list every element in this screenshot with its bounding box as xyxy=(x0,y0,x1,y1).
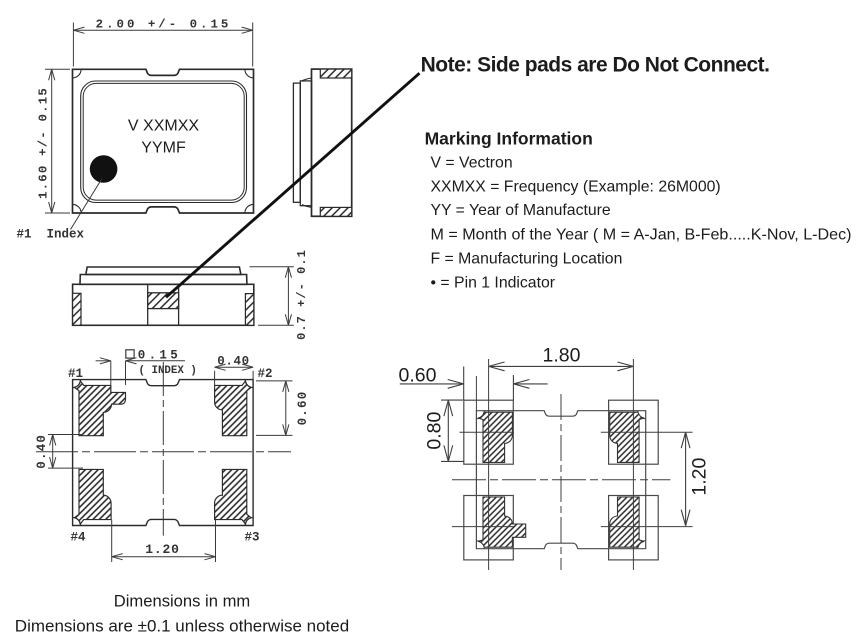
svg-text:#3: #3 xyxy=(245,531,260,545)
svg-text:#2: #2 xyxy=(258,367,273,381)
svg-text:1.20: 1.20 xyxy=(688,457,710,495)
svg-text:0.40: 0.40 xyxy=(217,355,249,369)
svg-text:0.80: 0.80 xyxy=(423,411,445,449)
svg-text:#1: #1 xyxy=(68,367,83,381)
svg-text:( INDEX ): ( INDEX ) xyxy=(139,365,197,377)
svg-text:V XXMXX: V XXMXX xyxy=(128,118,199,135)
svg-text:V = Vectron: V = Vectron xyxy=(431,155,513,172)
svg-text:#4: #4 xyxy=(71,531,87,545)
svg-text:1.60 +/- 0.15: 1.60 +/- 0.15 xyxy=(37,87,51,199)
svg-text:#1: #1 xyxy=(17,228,32,242)
svg-text:Dimensions in mm: Dimensions in mm xyxy=(114,592,250,611)
svg-text:1.20: 1.20 xyxy=(145,542,179,557)
svg-text:YYMF: YYMF xyxy=(141,140,186,157)
svg-text:Index: Index xyxy=(47,228,85,242)
svg-text:YY = Year of Manufacture: YY = Year of Manufacture xyxy=(431,202,611,219)
svg-text:1.80: 1.80 xyxy=(543,345,581,367)
svg-text:0.60: 0.60 xyxy=(399,365,437,387)
svg-text:• = Pin 1 Indicator: • = Pin 1 Indicator xyxy=(431,274,556,291)
svg-text:0.7 +/- 0.1: 0.7 +/- 0.1 xyxy=(295,249,309,340)
svg-text:XXMXX = Frequency (Example: 26: XXMXX = Frequency (Example: 26M000) xyxy=(431,178,721,195)
svg-text:0.15: 0.15 xyxy=(138,349,181,363)
svg-text:0.60: 0.60 xyxy=(296,391,310,426)
svg-text:M = Month of the Year ( M = A-: M = Month of the Year ( M = A-Jan, B-Feb… xyxy=(431,225,852,243)
svg-text:Note: Side pads are Do Not Con: Note: Side pads are Do Not Connect. xyxy=(421,54,770,77)
svg-text:F = Manufacturing Location: F = Manufacturing Location xyxy=(431,251,623,268)
svg-text:Dimensions are ±0.1 unless oth: Dimensions are ±0.1 unless otherwise not… xyxy=(15,617,349,636)
svg-text:Marking Information: Marking Information xyxy=(425,129,593,149)
svg-text:0.40: 0.40 xyxy=(35,434,49,469)
svg-text:2.00 +/- 0.15: 2.00 +/- 0.15 xyxy=(96,18,232,32)
